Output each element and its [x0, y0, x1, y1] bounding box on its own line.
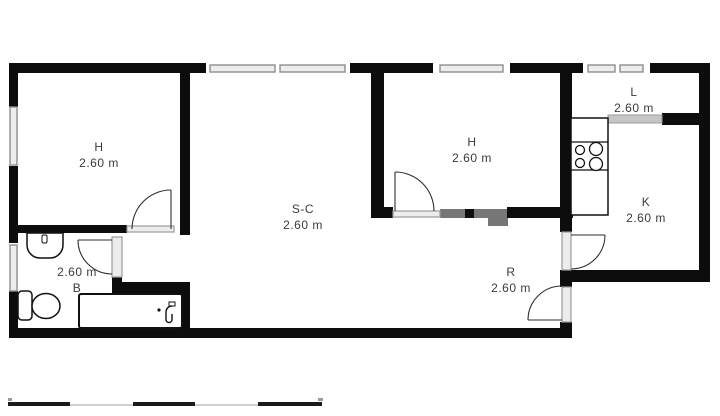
door-threshold	[112, 237, 122, 277]
scale-bar-end-tick	[8, 398, 12, 401]
toilet-bowl	[32, 294, 60, 319]
floor-plan: H 2.60 m S-C 2.60 m H 2.60 m L 2.60 m K …	[0, 0, 720, 416]
wall-segment	[180, 63, 190, 235]
wall-segment	[371, 63, 384, 213]
room-letter: B	[57, 280, 97, 296]
room-label-b: 2.60 m B	[57, 264, 97, 296]
door-swing-arc	[395, 172, 434, 211]
wall-segment	[560, 322, 572, 338]
wall-segment	[560, 270, 572, 287]
wall-segment	[565, 270, 710, 282]
window	[210, 65, 275, 72]
wall-segment	[9, 225, 127, 233]
window	[10, 245, 17, 291]
room-dimension: 2.60 m	[614, 100, 654, 116]
bathroom-fixtures	[18, 233, 182, 328]
toilet-tank	[18, 291, 32, 320]
room-dimension: 2.60 m	[283, 217, 323, 233]
room-dimension: 2.60 m	[79, 155, 119, 171]
stove-burner	[576, 159, 585, 168]
room-dimension: 2.60 m	[491, 280, 531, 296]
door-threshold	[393, 211, 440, 217]
room-dimension: 2.60 m	[452, 150, 492, 166]
door-threshold	[127, 226, 174, 232]
room-label-r: R 2.60 m	[491, 264, 531, 296]
wall-segment	[510, 63, 583, 73]
door-swing-arc	[528, 286, 562, 320]
door-swing-arc	[571, 235, 605, 269]
door-threshold	[562, 232, 571, 270]
partition-segment	[440, 209, 465, 218]
wall-segment	[560, 63, 572, 232]
scale-bar-end-tick	[318, 398, 323, 401]
door-threshold	[562, 287, 571, 322]
wall-segment	[9, 63, 18, 107]
room-dimension: 2.60 m	[57, 264, 97, 280]
room-label-k: K 2.60 m	[626, 194, 666, 226]
room-letter: S-C	[283, 201, 323, 217]
pass-through-counter	[608, 115, 662, 123]
bathtub-drain-icon	[157, 308, 160, 311]
scale-bar	[8, 398, 323, 406]
room-letter: R	[491, 264, 531, 280]
scale-bar-segment	[133, 402, 195, 406]
room-letter: K	[626, 194, 666, 210]
washbasin-tap-icon	[42, 235, 47, 243]
wall-segment	[350, 63, 433, 73]
room-dimension: 2.60 m	[626, 210, 666, 226]
stove-burner	[590, 158, 603, 171]
wall-segment	[9, 63, 206, 73]
partition-segment	[488, 218, 508, 226]
wall-segment	[465, 209, 474, 218]
room-letter: L	[614, 84, 654, 100]
window	[620, 65, 643, 72]
scale-bar-segment	[258, 402, 322, 406]
windows	[10, 65, 643, 291]
window	[10, 107, 17, 165]
door-swing-arc	[132, 190, 171, 229]
wall-segment	[371, 207, 393, 218]
room-letter: H	[79, 139, 119, 155]
wall-segment	[112, 282, 190, 293]
room-label-h-center: H 2.60 m	[452, 134, 492, 166]
room-letter: H	[452, 134, 492, 150]
floor-plan-drawing	[0, 0, 720, 416]
room-label-s-c: S-C 2.60 m	[283, 201, 323, 233]
room-label-h-top-left: H 2.60 m	[79, 139, 119, 171]
window	[280, 65, 345, 72]
wall-segment	[699, 63, 710, 282]
stove-burner	[590, 143, 603, 156]
kitchen-fixtures	[571, 118, 608, 215]
scale-bar-segment	[8, 402, 70, 406]
stove-burner	[576, 146, 585, 155]
partition-segment	[474, 209, 507, 218]
gray-partition	[440, 209, 508, 226]
wall-segment	[9, 328, 572, 338]
window	[588, 65, 615, 72]
window	[440, 65, 503, 72]
room-label-l: L 2.60 m	[614, 84, 654, 116]
wall-segment	[662, 113, 702, 125]
